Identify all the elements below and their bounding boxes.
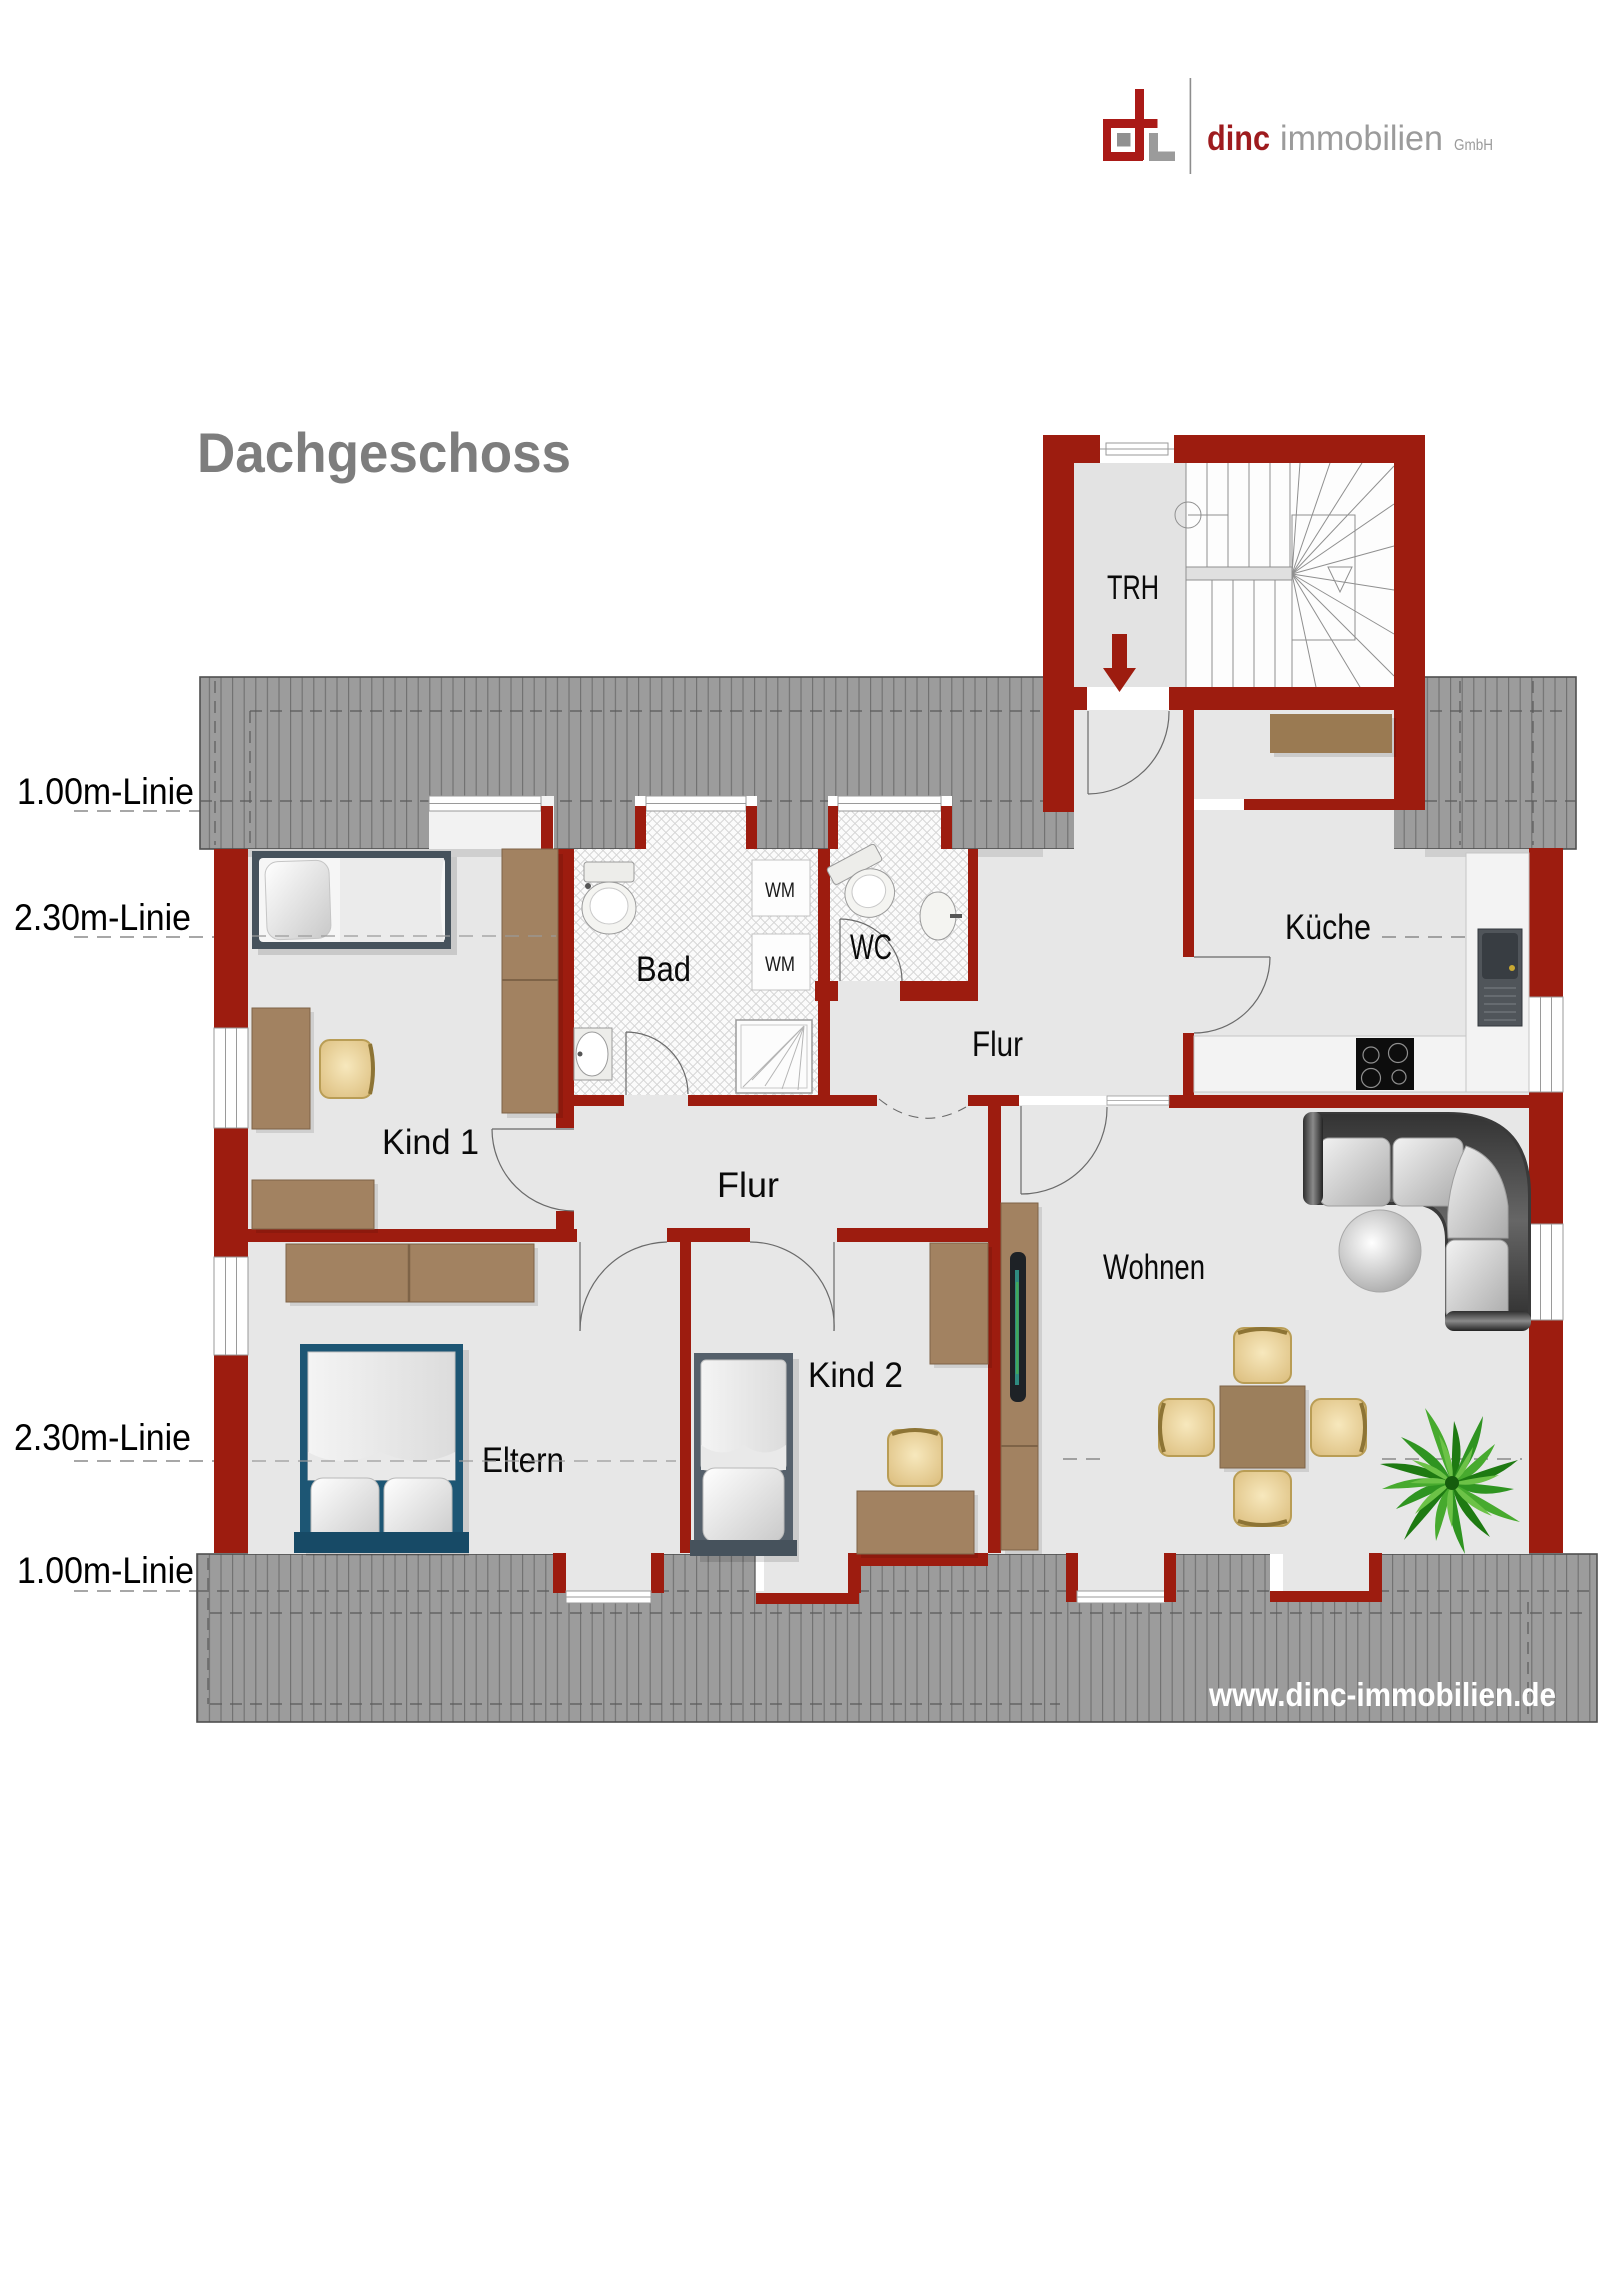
svg-text:Kind 1: Kind 1 bbox=[382, 1123, 479, 1162]
svg-text:1.00m-Linie: 1.00m-Linie bbox=[17, 771, 194, 812]
svg-text:2.30m-Linie: 2.30m-Linie bbox=[14, 897, 191, 938]
svg-text:immobilien: immobilien bbox=[1280, 119, 1443, 158]
svg-text:Kind 2: Kind 2 bbox=[808, 1356, 903, 1395]
svg-text:GmbH: GmbH bbox=[1454, 137, 1493, 154]
svg-text:Bad: Bad bbox=[636, 950, 691, 989]
svg-text:Flur: Flur bbox=[717, 1166, 779, 1205]
svg-text:Flur: Flur bbox=[972, 1025, 1023, 1064]
svg-text:WM: WM bbox=[765, 879, 795, 902]
svg-text:Wohnen: Wohnen bbox=[1103, 1248, 1205, 1287]
svg-text:2.30m-Linie: 2.30m-Linie bbox=[14, 1417, 191, 1458]
svg-text:WM: WM bbox=[765, 953, 795, 976]
svg-text:Küche: Küche bbox=[1285, 908, 1371, 947]
svg-text:Dachgeschoss: Dachgeschoss bbox=[197, 421, 571, 484]
svg-text:TRH: TRH bbox=[1107, 569, 1159, 607]
svg-text:www.dinc-immobilien.de: www.dinc-immobilien.de bbox=[1208, 1676, 1556, 1713]
svg-text:WC: WC bbox=[850, 928, 892, 967]
svg-text:1.00m-Linie: 1.00m-Linie bbox=[17, 1550, 194, 1591]
svg-text:dinc: dinc bbox=[1207, 119, 1270, 158]
